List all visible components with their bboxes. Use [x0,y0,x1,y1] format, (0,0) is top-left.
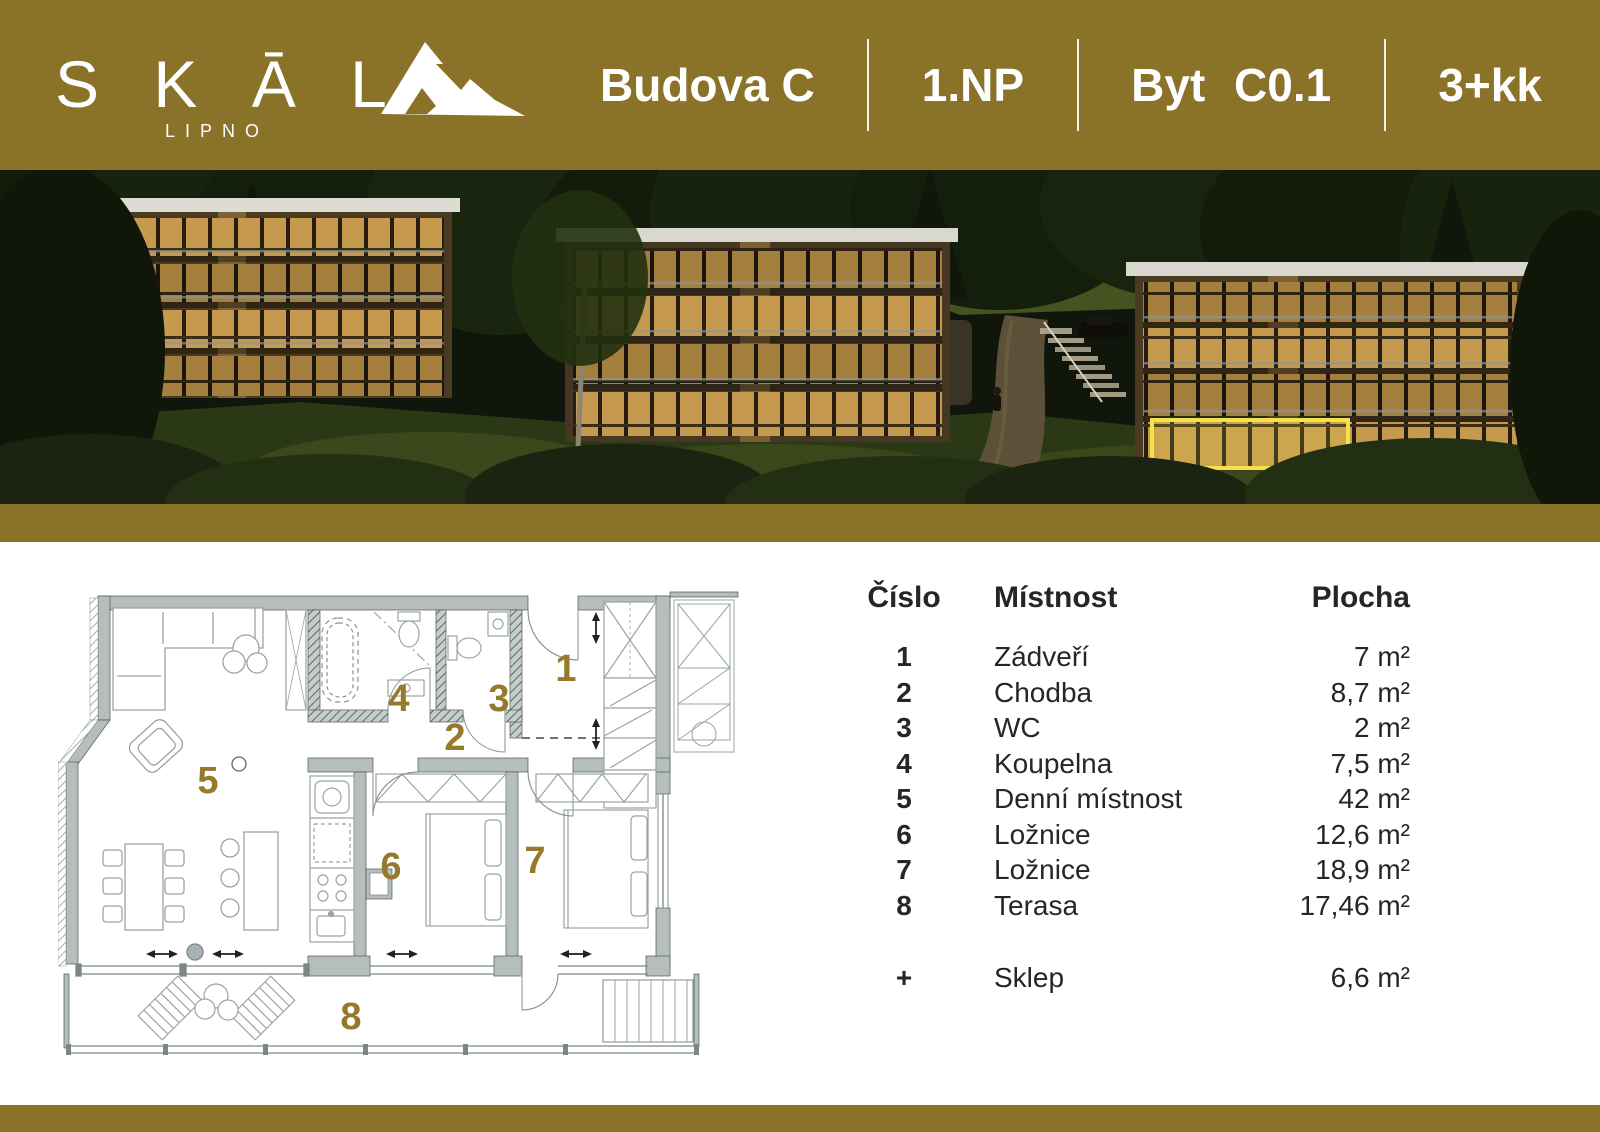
row-area: 12,6 m² [1240,817,1410,853]
title-layout: 3+kk [1438,58,1542,112]
room-number-7: 7 [524,840,545,882]
row-area: 17,46 m² [1240,888,1410,924]
table-row: 4 Koupelna 7,5 m² [858,746,1410,782]
row-num: + [858,960,950,996]
title-divider [1077,39,1079,131]
room-number-6: 6 [380,846,401,888]
title-divider [867,39,869,131]
row-name: WC [950,710,1240,746]
row-num: 4 [858,746,950,782]
table-row: 3 WC 2 m² [858,710,1410,746]
row-name: Chodba [950,675,1240,711]
photo-illustration [0,170,1600,504]
title-floor: 1.NP [922,58,1024,112]
title-divider [1384,39,1386,131]
row-num: 8 [858,888,950,924]
column-header-plocha: Plocha [1240,581,1410,615]
table-row: 1 Zádveří 7 m² [858,639,1410,675]
table-row: 7 Ložnice 18,9 m² [858,852,1410,888]
terrace-furniture [138,976,295,1040]
floor-plan-drawing: 1 2 3 4 5 6 7 8 [58,576,742,1068]
room-table: Číslo Místnost Plocha 1 Zádveří 7 m² 2 C… [858,581,1410,996]
gold-divider-strip [0,504,1600,542]
row-name: Ložnice [950,817,1240,853]
room-number-3: 3 [488,678,509,720]
project-photo [0,170,1600,504]
table-row: 5 Denní místnost 42 m² [858,781,1410,817]
row-area: 42 m² [1240,781,1410,817]
logo: S K Ā L LIPNO [55,34,529,142]
person-silhouette [993,387,1001,411]
row-name: Koupelna [950,746,1240,782]
room-number-2: 2 [444,717,465,759]
row-area: 7 m² [1240,639,1410,675]
room-number-4: 4 [388,678,409,720]
table-spacer [858,923,1410,960]
row-name: Denní místnost [950,781,1240,817]
header-title: Budova C 1.NP Byt C0.1 3+kk [600,0,1542,170]
row-area: 8,7 m² [1240,675,1410,711]
brand-header: S K Ā L LIPNO Budova C 1.NP Byt C0.1 3+k… [0,0,1600,170]
column-header-cislo: Číslo [858,581,950,615]
logo-subtitle: LIPNO [165,121,529,142]
table-row: 6 Ložnice 12,6 m² [858,817,1410,853]
row-num: 1 [858,639,950,675]
title-building: Budova C [600,58,815,112]
brochure-page: S K Ā L LIPNO Budova C 1.NP Byt C0.1 3+k… [0,0,1600,1132]
row-num: 3 [858,710,950,746]
title-apartment: Byt C0.1 [1131,58,1331,112]
row-name: Sklep [950,960,1240,996]
table-row-cellar: + Sklep 6,6 m² [858,960,1410,996]
table-header: Číslo Místnost Plocha [858,581,1410,615]
table-row: 2 Chodba 8,7 m² [858,675,1410,711]
table-row: 8 Terasa 17,46 m² [858,888,1410,924]
living-room-furniture [103,608,278,960]
row-area: 2 m² [1240,710,1410,746]
room-number-1: 1 [555,648,576,690]
row-num: 5 [858,781,950,817]
row-area: 7,5 m² [1240,746,1410,782]
mountain-icon [379,34,529,123]
footer-gold-band [0,1105,1600,1132]
room-number-8: 8 [340,996,361,1038]
column-header-mistnost: Místnost [950,581,1240,615]
kitchen [310,776,354,942]
exterior-steps [603,980,693,1042]
row-num: 7 [858,852,950,888]
row-name: Terasa [950,888,1240,924]
neighbour-closets [674,600,734,752]
row-name: Ložnice [950,852,1240,888]
row-num: 2 [858,675,950,711]
room-number-5: 5 [197,760,218,802]
row-area: 6,6 m² [1240,960,1410,996]
row-area: 18,9 m² [1240,852,1410,888]
row-num: 6 [858,817,950,853]
floor-plan: 1 2 3 4 5 6 7 8 [58,576,742,1068]
logo-text: S K Ā L [55,51,405,117]
row-name: Zádveří [950,639,1240,675]
